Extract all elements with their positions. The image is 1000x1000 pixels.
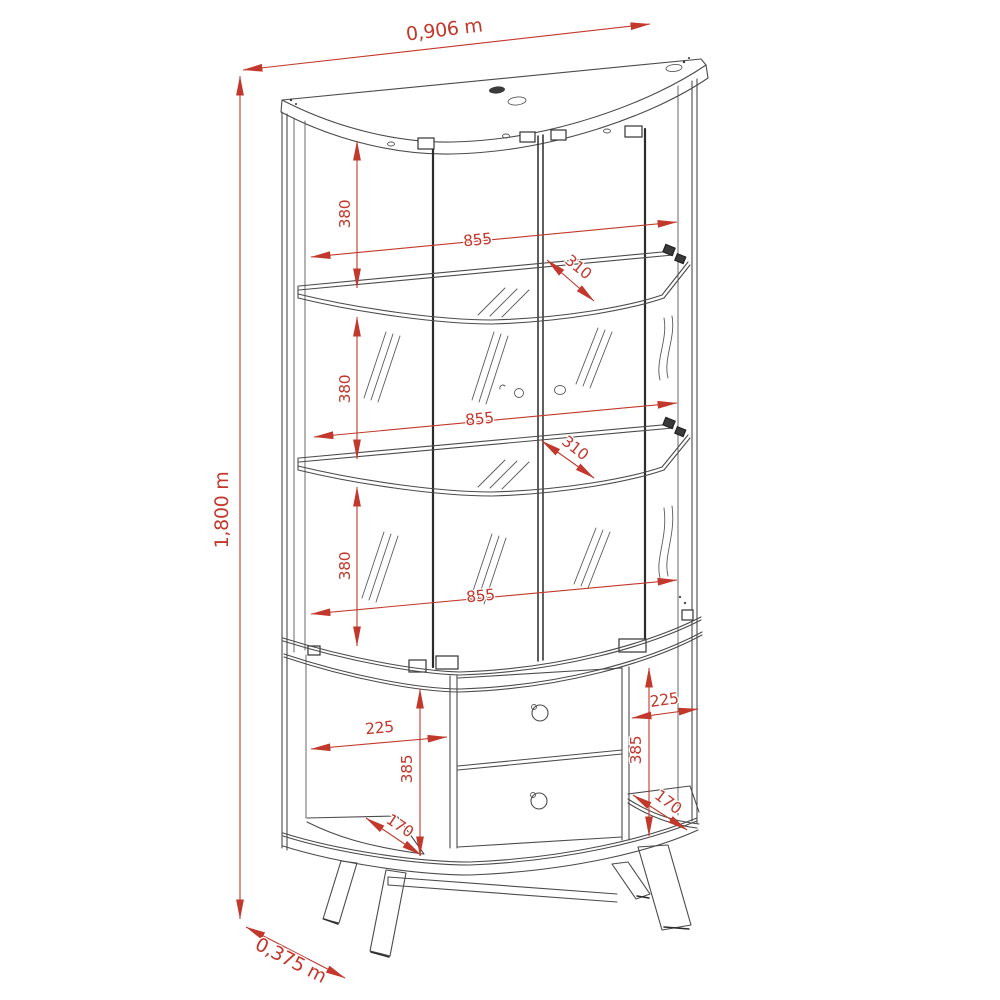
dim-label-shelf-depth-2: 310 [558, 432, 592, 464]
door-hinges-top [388, 126, 643, 149]
legs [323, 845, 691, 957]
dim-label-section-2: 380 [336, 375, 354, 404]
dim-label-niche-width-left: 225 [364, 718, 394, 739]
dim-label-niche-width-right: 225 [649, 689, 680, 711]
dim-label-overall-height: 1,800 m [211, 472, 233, 549]
leg-back-left [323, 861, 357, 923]
stretcher-rail [388, 877, 617, 902]
dim-line-niche-width-right [632, 709, 698, 718]
dim-label-overall-width: 0,906 m [405, 14, 484, 45]
bottom-panel [283, 818, 698, 875]
dim-label-lower-height-right: 385 [627, 736, 645, 765]
middle-panel [283, 617, 702, 692]
cabinet-drawing [281, 57, 708, 957]
dim-line-inner-width-2 [314, 403, 677, 437]
dim-label-section-3: 380 [336, 552, 354, 581]
dim-label-lower-height-left: 385 [398, 755, 416, 784]
glass-reflections-middle [364, 316, 673, 404]
dim-label-section-1: 380 [336, 200, 354, 229]
dim-label-shelf-depth-1: 310 [561, 251, 595, 283]
technical-drawing-page: 0,906 m 1,800 m 0,375 m 380 380 380 855 … [0, 0, 1000, 1000]
drawer-knob-1 [532, 705, 549, 722]
dim-line-niche-width-left [311, 737, 447, 749]
dim-label-inner-width-2: 855 [464, 409, 494, 430]
cable-hole-icon [489, 86, 506, 95]
dim-label-inner-width-3: 855 [465, 586, 495, 607]
dimensions: 0,906 m 1,800 m 0,375 m 380 380 380 855 … [211, 14, 698, 987]
dim-label-inner-width-1: 855 [462, 230, 492, 251]
dim-line-inner-width-1 [311, 222, 677, 257]
cabinet-dimension-diagram: 0,906 m 1,800 m 0,375 m 380 380 380 855 … [0, 0, 1000, 1000]
side-panels [282, 79, 697, 850]
drawer-knob-2 [531, 793, 548, 810]
glass-reflections-lower [362, 506, 673, 604]
dim-label-overall-depth: 0,375 m [251, 933, 329, 987]
